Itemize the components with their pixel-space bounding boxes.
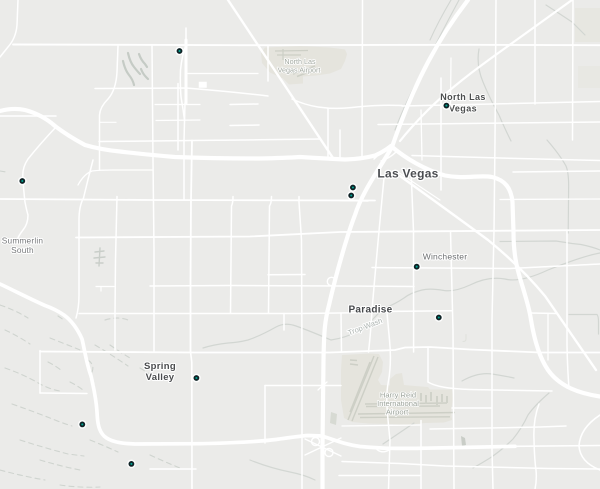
svg-text:Vegas: Vegas <box>449 104 477 114</box>
svg-text:Spring: Spring <box>144 361 176 372</box>
svg-text:Airport: Airport <box>386 408 409 417</box>
svg-text:Paradise: Paradise <box>348 305 392 316</box>
svg-text:Summerlin: Summerlin <box>2 236 44 246</box>
svg-text:Valley: Valley <box>146 372 175 383</box>
svg-text:Las Vegas: Las Vegas <box>377 167 438 181</box>
svg-text:North Las: North Las <box>440 92 486 102</box>
svg-text:Winchester: Winchester <box>423 252 468 262</box>
svg-text:Vegas Airport: Vegas Airport <box>278 66 321 75</box>
svg-text:South: South <box>11 245 34 255</box>
